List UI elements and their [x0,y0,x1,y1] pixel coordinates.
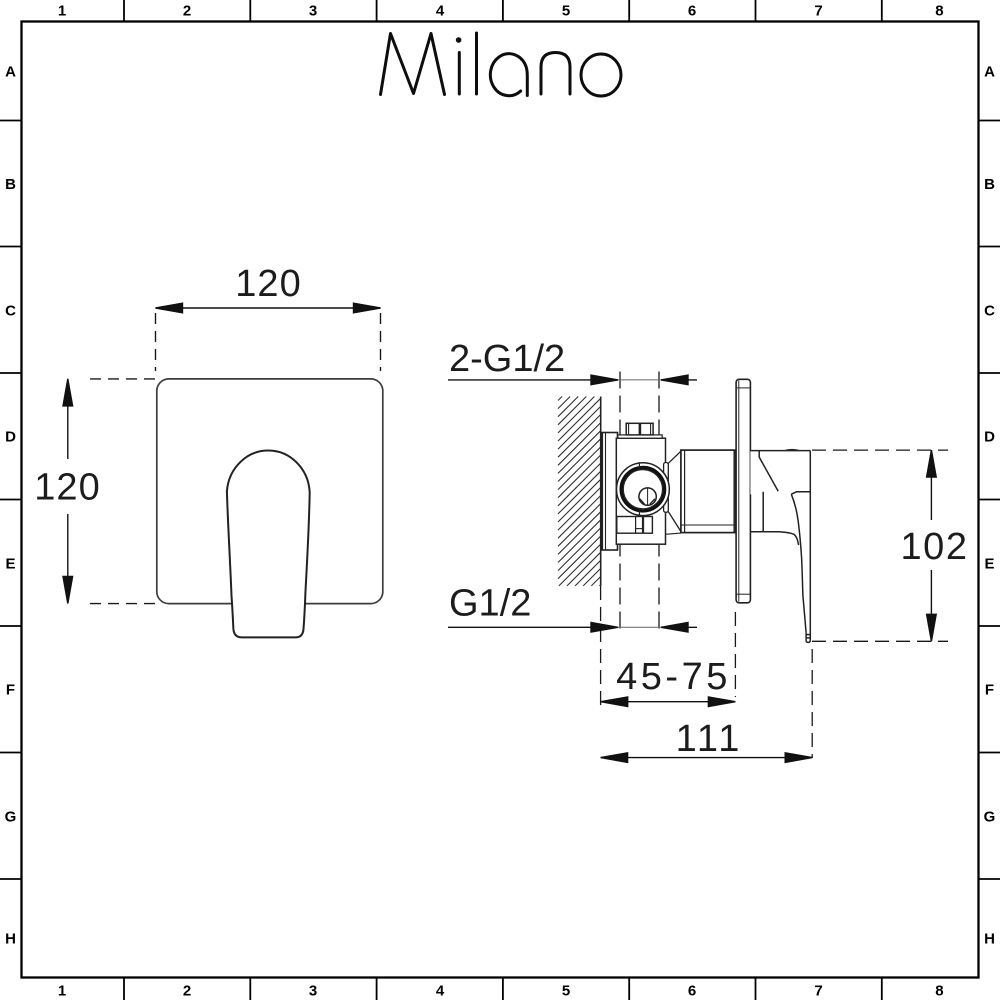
svg-text:120: 120 [235,263,301,305]
svg-text:8: 8 [935,983,943,1000]
svg-text:G: G [5,808,17,825]
svg-text:D: D [5,429,16,446]
svg-text:F: F [985,682,994,699]
svg-text:102: 102 [901,526,969,568]
svg-text:E: E [5,555,15,572]
svg-text:A: A [984,64,995,81]
svg-text:7: 7 [814,983,822,1000]
svg-text:D: D [984,429,995,446]
svg-text:6: 6 [688,3,696,20]
svg-text:1: 1 [58,3,66,20]
svg-text:45-75: 45-75 [616,656,731,698]
svg-text:6: 6 [688,983,696,1000]
svg-text:4: 4 [436,983,445,1000]
svg-text:1: 1 [58,983,66,1000]
svg-text:5: 5 [562,3,570,20]
svg-text:C: C [984,302,995,319]
svg-text:2: 2 [183,3,191,20]
svg-text:2: 2 [183,983,191,1000]
svg-text:3: 3 [309,3,317,20]
svg-text:G1/2: G1/2 [449,583,531,625]
svg-text:120: 120 [34,467,100,509]
svg-text:4: 4 [436,3,445,20]
svg-text:A: A [5,64,16,81]
svg-text:8: 8 [935,3,943,20]
svg-text:G: G [984,808,996,825]
svg-text:B: B [5,176,16,193]
svg-text:B: B [984,176,995,193]
svg-text:7: 7 [814,3,822,20]
svg-text:F: F [6,682,15,699]
svg-text:111: 111 [676,718,743,760]
svg-text:2-G1/2: 2-G1/2 [449,338,565,380]
svg-text:H: H [984,931,995,948]
svg-text:3: 3 [309,983,317,1000]
svg-text:C: C [5,302,16,319]
svg-text:H: H [5,931,16,948]
svg-text:5: 5 [562,983,570,1000]
svg-text:E: E [984,555,994,572]
